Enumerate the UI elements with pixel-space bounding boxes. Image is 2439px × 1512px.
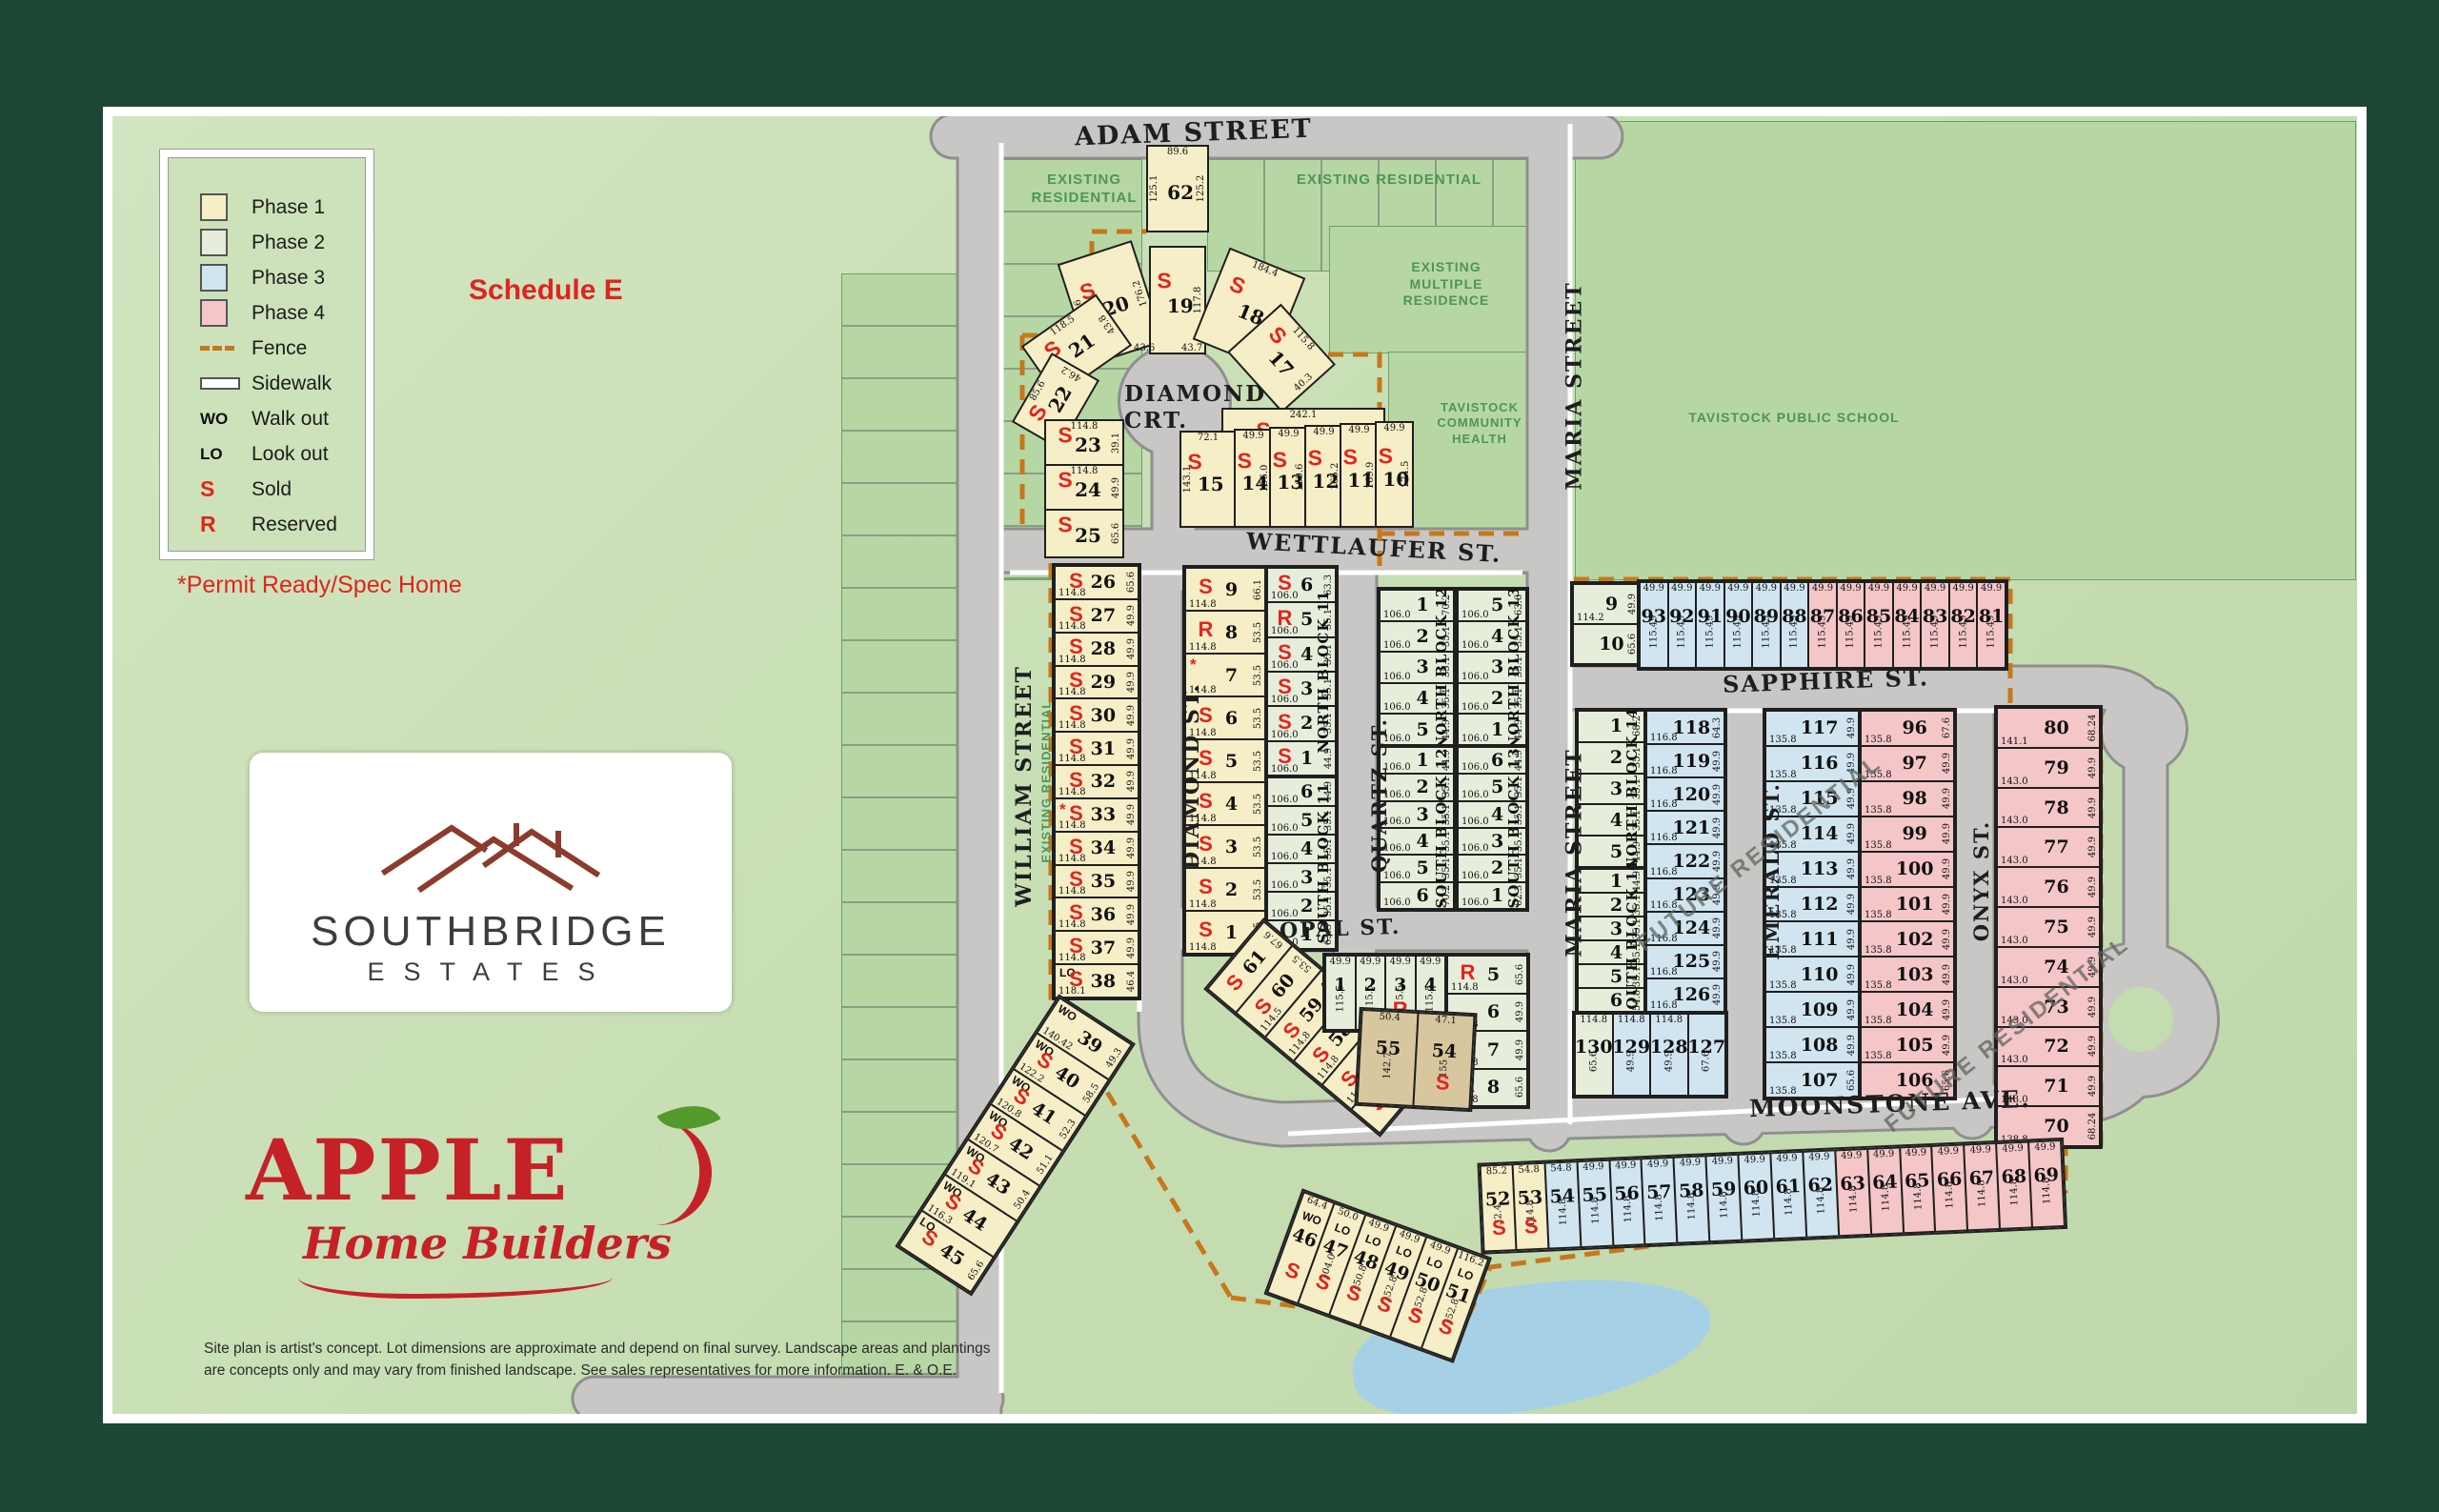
- legend-item: Phase 3: [200, 260, 353, 295]
- apple-swoosh: [298, 1269, 613, 1299]
- block-lots-118-126: 118116.864.3119116.849.9120116.849.91211…: [1645, 710, 1725, 1013]
- block-label: NORTH BLOCK 11: [1315, 591, 1332, 754]
- lot-124[interactable]: 124116.849.9: [1645, 911, 1725, 946]
- lot-14[interactable]: S14 156.049.9: [1234, 429, 1273, 528]
- block-lots-54-55-tan: 5550.4142.7S5447.1155: [1356, 1009, 1475, 1110]
- lot-106[interactable]: 10665.6: [1860, 1061, 1955, 1099]
- lot-109[interactable]: 109135.849.9: [1764, 991, 1860, 1028]
- site-plan-stage: Phase 1Phase 2Phase 3Phase 4FenceSidewal…: [0, 0, 2439, 1512]
- lot-116[interactable]: 116135.849.9: [1764, 745, 1860, 782]
- lot-111[interactable]: 111135.849.9: [1764, 920, 1860, 958]
- block-south-11: SOUTH BLOCK 116106.044.95106.035.14106.0…: [1266, 776, 1337, 950]
- lot-77[interactable]: 77143.049.9: [1996, 826, 2101, 868]
- lot-8[interactable]: R8114.853.5: [1184, 610, 1266, 655]
- bulb-dim-a: 43.6: [1134, 343, 1155, 353]
- lot-9[interactable]: S9114.866.1: [1184, 567, 1266, 612]
- lot-33[interactable]: *S33114.849.9: [1054, 797, 1139, 833]
- disclaimer: Site plan is artist's concept. Lot dimen…: [204, 1338, 1023, 1382]
- lot-81[interactable]: 8149.9115.49: [1976, 581, 2006, 669]
- lot-122[interactable]: 122116.849.9: [1645, 843, 1725, 878]
- legend-item: Phase 1: [200, 190, 353, 225]
- lot-123[interactable]: 123116.849.9: [1645, 877, 1725, 913]
- lot-35[interactable]: S35114.849.9: [1054, 864, 1139, 899]
- lot-73[interactable]: 73143.049.9: [1996, 986, 2101, 1028]
- block-north-14: NORTH BLOCK 14168.2235.1335.1435.1544.9: [1577, 710, 1645, 868]
- lot-128[interactable]: 128114.849.9: [1649, 1013, 1689, 1097]
- block-south-12: SOUTH BLOCK 121106.044.92106.035.13106.0…: [1379, 746, 1455, 910]
- lot-7[interactable]: *7114.853.5: [1184, 653, 1266, 697]
- lot-24[interactable]: S24 114.849.9: [1044, 464, 1124, 512]
- lot-100[interactable]: 100135.849.9: [1860, 851, 1955, 888]
- lot-62[interactable]: 89.662 125.1125.2: [1146, 145, 1209, 232]
- apple-wordmark: APPLE: [246, 1120, 570, 1220]
- lot-28[interactable]: S28114.849.9: [1054, 632, 1139, 667]
- disclaimer-line2: are concepts only and may vary from fini…: [204, 1360, 1023, 1381]
- lot-13[interactable]: S13 160.649.9: [1269, 427, 1308, 528]
- lot-34[interactable]: S34114.849.9: [1054, 831, 1139, 866]
- lot-91[interactable]: 9149.9115.49: [1695, 581, 1725, 669]
- legend-item: Fence: [200, 331, 353, 366]
- block-label: SOUTH BLOCK 12: [1433, 748, 1450, 909]
- lot-110[interactable]: 110135.849.9: [1764, 956, 1860, 993]
- lot-10[interactable]: 1065.6: [1572, 623, 1641, 665]
- lot-5[interactable]: S5114.853.5: [1184, 738, 1266, 783]
- lot-96[interactable]: 96135.867.6: [1860, 710, 1955, 747]
- legend-item: WOWalk out: [200, 401, 353, 436]
- legend-item: Phase 4: [200, 295, 353, 331]
- lot-12[interactable]: S12 165.249.9: [1304, 425, 1343, 528]
- lot-99[interactable]: 99135.849.9: [1860, 816, 1955, 853]
- lot-30[interactable]: S30114.849.9: [1054, 697, 1139, 733]
- lot-3[interactable]: S3114.853.5: [1184, 824, 1266, 869]
- block-label: NORTH BLOCK 13: [1505, 586, 1522, 749]
- block-lots-70-80: 80141.168.2479143.049.978143.049.977143.…: [1996, 707, 2101, 1147]
- lot-102[interactable]: 102135.849.9: [1860, 920, 1955, 958]
- lot-5[interactable]: R5114.865.6: [1446, 955, 1528, 995]
- block-south-14: SOUTH BLOCK 14144.9235.1335.1435.1535.16…: [1577, 868, 1645, 1013]
- legend: Phase 1Phase 2Phase 3Phase 4FenceSidewal…: [160, 150, 373, 559]
- lot-71[interactable]: 71143.049.9: [1996, 1065, 2101, 1107]
- lot-115[interactable]: 115135.849.9: [1764, 780, 1860, 817]
- lot-79[interactable]: 79143.049.9: [1996, 747, 2101, 789]
- southbridge-sub: ESTATES: [367, 958, 614, 987]
- lot-83[interactable]: 8349.9115.49: [1920, 581, 1950, 669]
- lot-114[interactable]: 114135.849.9: [1764, 816, 1860, 853]
- apple-tagline: Home Builders: [303, 1218, 760, 1269]
- legend-item: Sidewalk: [200, 366, 353, 401]
- lot-74[interactable]: 74143.049.9: [1996, 946, 2101, 988]
- lot-76[interactable]: 76143.049.9: [1996, 866, 2101, 908]
- block-lots-127-130: 130114.865.6129114.849.9128114.849.91276…: [1574, 1013, 1726, 1097]
- lot-54[interactable]: S5447.1155: [1412, 1012, 1475, 1110]
- lot-31[interactable]: S31114.849.9: [1054, 731, 1139, 766]
- lot-117[interactable]: 117135.849.9: [1764, 710, 1860, 747]
- lot-93[interactable]: 9349.9115.49: [1639, 581, 1669, 669]
- block-label: SOUTH BLOCK 14: [1623, 860, 1641, 1021]
- lot-84[interactable]: 8449.9115.49: [1892, 581, 1923, 669]
- lot-88[interactable]: 8849.9115.49: [1780, 581, 1810, 669]
- lot-1[interactable]: 149.9115.5: [1324, 955, 1357, 1031]
- apple-logo: APPLE Home Builders: [246, 1128, 760, 1338]
- block-lots-1-9-diamond: S9114.866.1R8114.853.5*7114.853.5S6114.8…: [1184, 567, 1266, 955]
- lot-127[interactable]: 12767.6: [1687, 1013, 1727, 1097]
- lot-27[interactable]: S27114.849.9: [1054, 598, 1139, 634]
- lot-25[interactable]: S25 65.6: [1044, 509, 1124, 558]
- lot-105[interactable]: 105135.849.9: [1860, 1026, 1955, 1063]
- southbridge-name: SOUTHBRIDGE: [311, 908, 671, 956]
- lot-72[interactable]: 72143.049.9: [1996, 1026, 2101, 1068]
- legend-item: LOLook out: [200, 436, 353, 472]
- lot-75[interactable]: 75143.049.9: [1996, 906, 2101, 948]
- lot-126[interactable]: 126116.849.9: [1645, 978, 1725, 1013]
- lot-9[interactable]: 9114.249.9: [1572, 583, 1641, 625]
- block-south-13: SOUTH BLOCK 136106.044.95106.035.14106.0…: [1457, 746, 1527, 910]
- legend-item: RReserved: [200, 507, 353, 542]
- block-north-13: NORTH BLOCK 135106.063.64106.035.13106.0…: [1457, 589, 1527, 746]
- lot-104[interactable]: 104135.849.9: [1860, 991, 1955, 1028]
- apple-paren-shape: [654, 1120, 716, 1229]
- legend-item: Phase 2: [200, 225, 353, 260]
- lot-38[interactable]: LOS38118.146.4: [1054, 963, 1139, 998]
- lot-89[interactable]: 8949.9115.49: [1751, 581, 1782, 669]
- block-lots-9-10: 9114.249.91065.6: [1572, 583, 1641, 665]
- lot-130[interactable]: 130114.865.6: [1574, 1013, 1614, 1097]
- lot-32[interactable]: S32114.849.9: [1054, 764, 1139, 799]
- lot-23[interactable]: S23 114.839.1: [1044, 419, 1124, 467]
- lot-97[interactable]: 97135.849.9: [1860, 745, 1955, 782]
- lot-10[interactable]: S10 174.549.9: [1375, 421, 1414, 528]
- southbridge-roofs-icon: [372, 805, 610, 908]
- lot-90[interactable]: 9049.9115.49: [1723, 581, 1754, 669]
- lot-29[interactable]: S29114.849.9: [1054, 665, 1139, 700]
- lot-86[interactable]: 8649.9115.49: [1836, 581, 1866, 669]
- lot-92[interactable]: 9249.9115.49: [1667, 581, 1698, 669]
- lot-125[interactable]: 125116.849.9: [1645, 944, 1725, 979]
- lot-55[interactable]: 5550.4142.7: [1356, 1009, 1419, 1107]
- lot-113[interactable]: 113135.849.9: [1764, 851, 1860, 888]
- lot-118[interactable]: 118116.864.3: [1645, 710, 1725, 745]
- block-lots-26-38: S26114.865.6S27114.849.9S28114.849.9S291…: [1054, 565, 1139, 998]
- lot-15[interactable]: S15 143.172.1: [1179, 431, 1237, 528]
- lot-37[interactable]: S37114.849.9: [1054, 930, 1139, 965]
- lot-6[interactable]: S6114.853.5: [1184, 696, 1266, 740]
- lot-11[interactable]: S11 169.949.9: [1340, 423, 1379, 528]
- lot-103[interactable]: 103135.849.9: [1860, 956, 1955, 993]
- block-north-12: NORTH BLOCK 121106.070.22106.035.13106.0…: [1379, 589, 1455, 746]
- block-label: SOUTH BLOCK 11: [1315, 783, 1332, 944]
- lot-82[interactable]: 8249.9115.49: [1948, 581, 1979, 669]
- lot-4[interactable]: S4114.853.5: [1184, 781, 1266, 826]
- lot-26[interactable]: S26114.865.6: [1054, 565, 1139, 600]
- lot-120[interactable]: 120116.849.9: [1645, 776, 1725, 812]
- disclaimer-line1: Site plan is artist's concept. Lot dimen…: [204, 1338, 1023, 1360]
- lot-87[interactable]: 8749.9115.49: [1807, 581, 1838, 669]
- block-label: NORTH BLOCK 12: [1433, 586, 1450, 749]
- block-lots-96-106: 96135.867.697135.849.998135.849.999135.8…: [1860, 710, 1955, 1099]
- lot-119[interactable]: 119116.849.9: [1645, 743, 1725, 778]
- lot-121[interactable]: 121116.849.9: [1645, 810, 1725, 845]
- lot-108[interactable]: 108135.849.9: [1764, 1026, 1860, 1063]
- lot-78[interactable]: 78143.049.9: [1996, 787, 2101, 829]
- lot-36[interactable]: S36114.849.9: [1054, 897, 1139, 932]
- block-north-11: NORTH BLOCK 11S6106.063.3R5106.035.1S410…: [1266, 567, 1337, 776]
- block-lots-107-117: 117135.849.9116135.849.9115135.849.91141…: [1764, 710, 1860, 1099]
- lot-85[interactable]: 8549.9115.49: [1864, 581, 1894, 669]
- lot-2[interactable]: S2114.853.5: [1184, 867, 1266, 912]
- bulb-dim-b: 43.7: [1181, 343, 1202, 353]
- lot-129[interactable]: 129114.849.9: [1612, 1013, 1652, 1097]
- block-label: SOUTH BLOCK 13: [1505, 748, 1522, 909]
- southbridge-logo-card: SOUTHBRIDGE ESTATES: [250, 753, 732, 1012]
- lot-98[interactable]: 98135.849.9: [1860, 780, 1955, 817]
- block-lots-81-93: 9349.9115.499249.9115.499149.9115.499049…: [1639, 581, 2006, 669]
- map-frame: Phase 1Phase 2Phase 3Phase 4FenceSidewal…: [103, 107, 2367, 1423]
- lot-112[interactable]: 112135.849.9: [1764, 886, 1860, 923]
- legend-item: SSold: [200, 472, 353, 507]
- lot-101[interactable]: 101135.849.9: [1860, 886, 1955, 923]
- block-label: NORTH BLOCK 14: [1623, 708, 1641, 871]
- lot-69[interactable]: 6949.9114.8: [2027, 1139, 2066, 1228]
- lot-80[interactable]: 80141.168.24: [1996, 707, 2101, 749]
- lot-107[interactable]: 107135.865.6: [1764, 1061, 1860, 1099]
